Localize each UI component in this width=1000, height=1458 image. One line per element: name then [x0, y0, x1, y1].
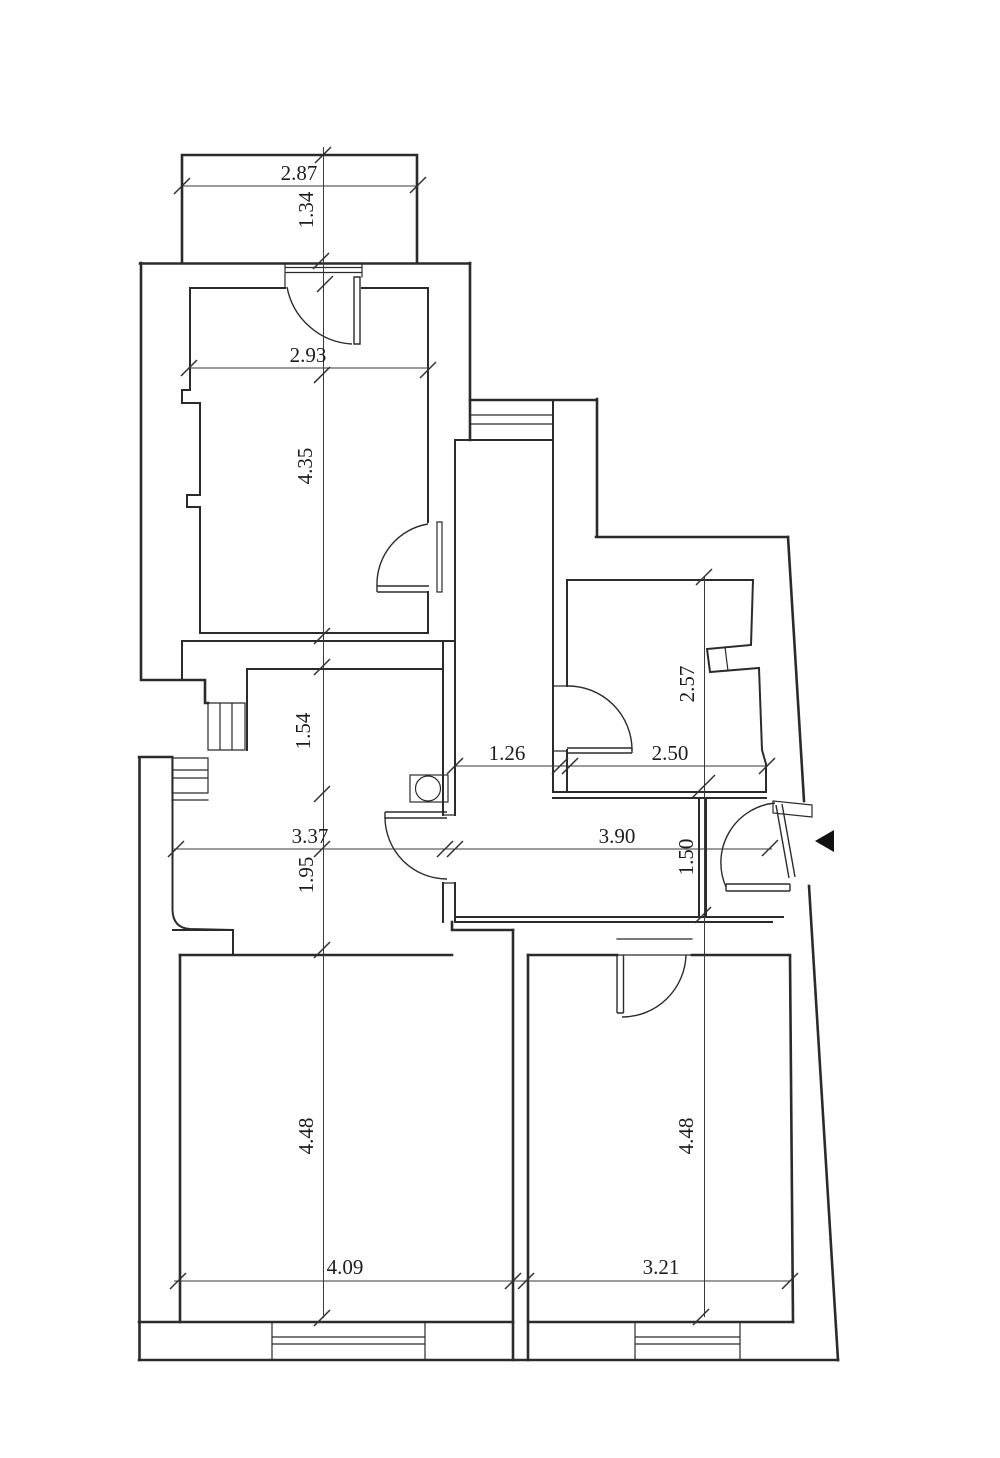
dim-label-room-left-width: 4.09	[327, 1255, 364, 1279]
dim-label-room-left-height: 4.48	[294, 1118, 318, 1155]
dim-label-room-top-width: 2.93	[290, 343, 327, 367]
window-top-strip	[470, 400, 553, 440]
floor-plan-drawing: 2.87 1.34 2.93 4.35 1.54 3.37 1.95 1.26 …	[0, 0, 1000, 1458]
door-corridor	[385, 812, 455, 883]
door-bathroom	[553, 686, 632, 753]
dimension-ticks	[168, 147, 798, 1326]
dim-label-room-right-height: 4.48	[674, 1118, 698, 1155]
dim-label-corridor-lower-height: 1.95	[294, 857, 318, 894]
dim-label-corridor-width: 3.37	[292, 824, 329, 848]
dim-label-room-right-width: 3.21	[643, 1255, 680, 1279]
door-entry	[721, 801, 812, 891]
dim-label-bath-height: 2.57	[675, 666, 699, 703]
dim-label-balcony-depth: 1.34	[294, 191, 318, 228]
window-left-lower	[172, 758, 208, 793]
dim-label-hallway-width: 3.90	[599, 824, 636, 848]
dim-label-hall-width: 1.26	[489, 741, 526, 765]
dim-label-room-top-height: 4.35	[293, 448, 317, 485]
interior-walls	[139, 288, 793, 1360]
entry-arrow-icon	[815, 830, 834, 852]
window-left-upper	[208, 703, 245, 750]
dim-label-hallway-height: 1.50	[674, 839, 698, 876]
exterior-walls	[139, 263, 838, 1360]
dim-label-bath-width: 2.50	[652, 741, 689, 765]
dim-label-balcony-width: 2.87	[281, 161, 318, 185]
window-bottom-right	[635, 1322, 740, 1360]
floor-plan-sheet: 2.87 1.34 2.93 4.35 1.54 3.37 1.95 1.26 …	[0, 0, 1000, 1458]
door-room-top	[377, 522, 442, 592]
dimension-labels: 2.87 1.34 2.93 4.35 1.54 3.37 1.95 1.26 …	[281, 161, 699, 1279]
door-room-bottom-right	[617, 939, 692, 1017]
window-bottom-left	[272, 1322, 425, 1360]
dim-label-corridor-upper-height: 1.54	[291, 712, 315, 749]
